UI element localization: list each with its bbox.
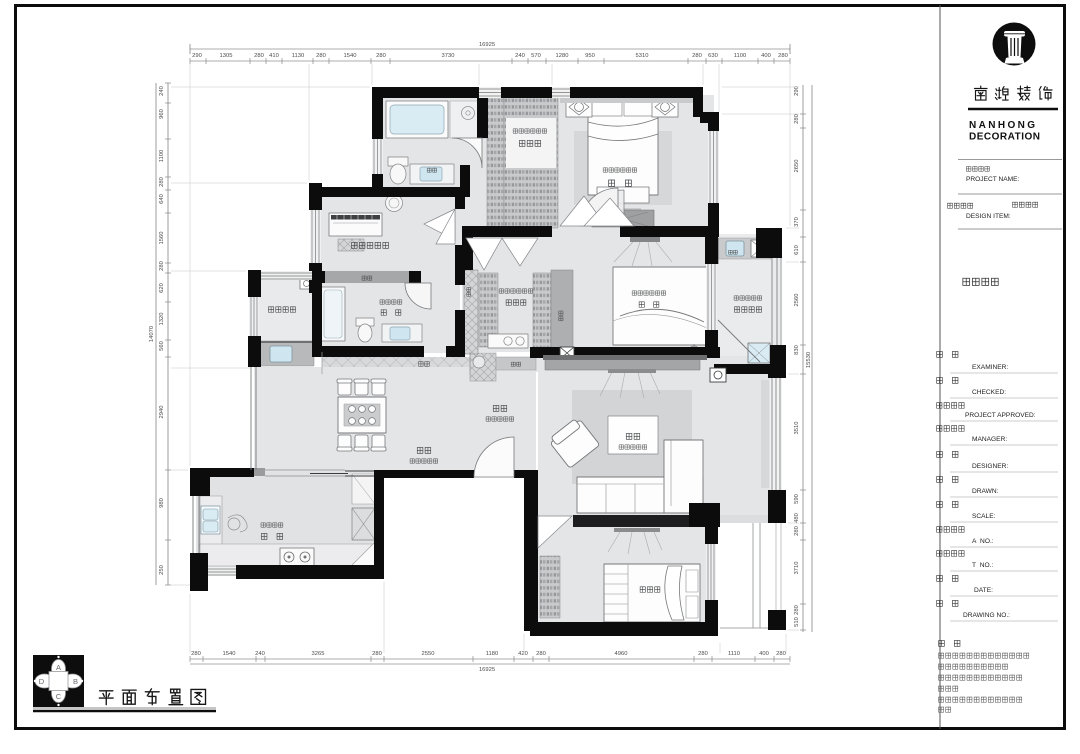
svg-text:DECORATION: DECORATION bbox=[969, 132, 1040, 143]
svg-text:610: 610 bbox=[794, 245, 800, 255]
svg-text:280: 280 bbox=[776, 651, 786, 657]
svg-text:PROJECT APPROVED:: PROJECT APPROVED: bbox=[965, 412, 1036, 419]
svg-text:D: D bbox=[39, 677, 45, 686]
svg-text:DESIGN ITEM:: DESIGN ITEM: bbox=[966, 213, 1011, 220]
svg-text:4960: 4960 bbox=[615, 651, 628, 657]
svg-text:370: 370 bbox=[794, 217, 800, 227]
svg-text:PROJECT NAME:: PROJECT NAME: bbox=[966, 176, 1020, 183]
svg-text:480: 480 bbox=[794, 513, 800, 523]
svg-text:640: 640 bbox=[159, 194, 165, 204]
svg-text:MANAGER:: MANAGER: bbox=[972, 436, 1007, 443]
svg-text:280: 280 bbox=[692, 53, 702, 59]
svg-text:1540: 1540 bbox=[344, 53, 357, 59]
svg-text:CHECKED:: CHECKED: bbox=[972, 389, 1006, 396]
svg-text:590: 590 bbox=[794, 494, 800, 504]
svg-text:1320: 1320 bbox=[159, 313, 165, 326]
svg-text:3710: 3710 bbox=[794, 562, 800, 575]
svg-text:290: 290 bbox=[794, 86, 800, 96]
svg-text:280: 280 bbox=[778, 53, 788, 59]
svg-text:DRAWING NO.:: DRAWING NO.: bbox=[963, 612, 1010, 619]
svg-text:A NO.:: A NO.: bbox=[972, 538, 994, 545]
svg-text:570: 570 bbox=[531, 53, 541, 59]
svg-text:280: 280 bbox=[794, 605, 800, 615]
svg-text:B: B bbox=[73, 677, 78, 686]
svg-text:280: 280 bbox=[698, 651, 708, 657]
svg-text:NANHONG: NANHONG bbox=[969, 120, 1037, 131]
svg-text:280: 280 bbox=[794, 114, 800, 124]
svg-text:1280: 1280 bbox=[556, 53, 569, 59]
svg-text:620: 620 bbox=[159, 283, 165, 293]
svg-text:280: 280 bbox=[191, 651, 201, 657]
svg-text:1560: 1560 bbox=[159, 232, 165, 245]
svg-text:1180: 1180 bbox=[486, 651, 498, 657]
svg-text:3265: 3265 bbox=[312, 651, 325, 657]
svg-text:510: 510 bbox=[794, 617, 800, 627]
svg-text:280: 280 bbox=[316, 53, 326, 59]
svg-text:1110: 1110 bbox=[728, 651, 740, 657]
svg-text:240: 240 bbox=[255, 651, 265, 657]
svg-text:950: 950 bbox=[585, 53, 595, 59]
svg-text:2560: 2560 bbox=[794, 294, 800, 307]
svg-text:290: 290 bbox=[192, 53, 202, 59]
svg-text:240: 240 bbox=[515, 53, 525, 59]
svg-text:14070: 14070 bbox=[149, 326, 155, 342]
svg-text:960: 960 bbox=[159, 109, 165, 119]
svg-text:DESIGNER:: DESIGNER: bbox=[972, 463, 1008, 470]
svg-text:280: 280 bbox=[159, 261, 165, 271]
svg-text:16925: 16925 bbox=[479, 667, 495, 673]
svg-text:240: 240 bbox=[159, 86, 165, 96]
svg-text:EXAMINER:: EXAMINER: bbox=[972, 364, 1008, 371]
svg-text:1100: 1100 bbox=[734, 53, 746, 59]
svg-text:410: 410 bbox=[269, 53, 279, 59]
svg-text:250: 250 bbox=[159, 565, 165, 575]
svg-text:420: 420 bbox=[518, 651, 528, 657]
svg-text:1130: 1130 bbox=[292, 53, 304, 59]
svg-text:1100: 1100 bbox=[159, 150, 165, 162]
svg-text:3510: 3510 bbox=[794, 422, 800, 435]
svg-text:3730: 3730 bbox=[442, 53, 455, 59]
svg-text:A: A bbox=[56, 663, 61, 672]
svg-text:400: 400 bbox=[761, 53, 771, 59]
svg-text:280: 280 bbox=[794, 526, 800, 536]
svg-text:2650: 2650 bbox=[794, 160, 800, 173]
svg-text:C: C bbox=[56, 692, 62, 701]
svg-text:280: 280 bbox=[159, 177, 165, 187]
svg-text:T NO.:: T NO.: bbox=[972, 562, 993, 569]
svg-text:16925: 16925 bbox=[479, 42, 495, 48]
svg-text:5310: 5310 bbox=[636, 53, 649, 59]
svg-text:2550: 2550 bbox=[422, 651, 435, 657]
svg-text:2940: 2940 bbox=[159, 406, 165, 419]
svg-text:DRAWN:: DRAWN: bbox=[972, 488, 999, 495]
svg-text:280: 280 bbox=[376, 53, 386, 59]
svg-text:1540: 1540 bbox=[223, 651, 236, 657]
svg-text:DATE:: DATE: bbox=[974, 587, 993, 594]
svg-text:400: 400 bbox=[759, 651, 769, 657]
svg-text:SCALE:: SCALE: bbox=[972, 513, 996, 520]
svg-text:280: 280 bbox=[372, 651, 382, 657]
svg-text:980: 980 bbox=[159, 498, 165, 508]
svg-text:280: 280 bbox=[536, 651, 546, 657]
svg-text:560: 560 bbox=[159, 341, 165, 351]
svg-text:630: 630 bbox=[708, 53, 718, 59]
svg-text:1305: 1305 bbox=[220, 53, 233, 59]
svg-text:830: 830 bbox=[794, 345, 800, 355]
svg-text:15530: 15530 bbox=[806, 352, 812, 368]
svg-text:280: 280 bbox=[254, 53, 264, 59]
